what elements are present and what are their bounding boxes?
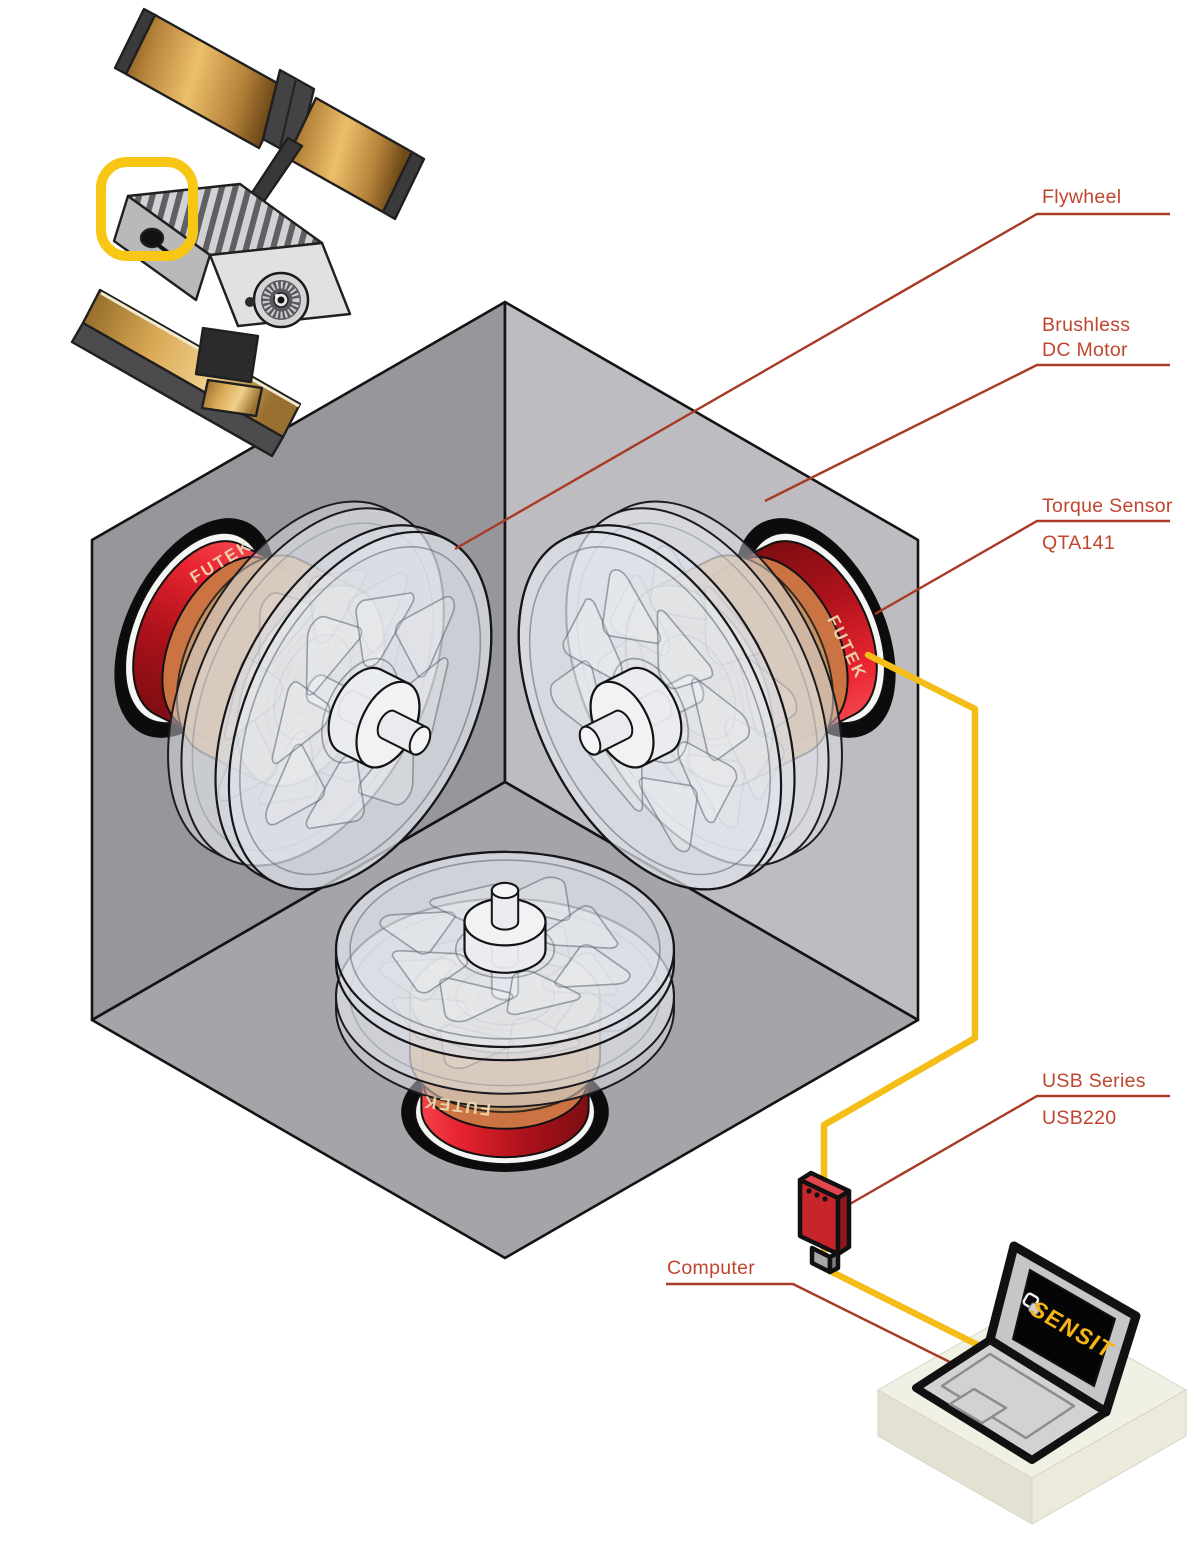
label-torque-sensor: Torque Sensor <box>1042 495 1173 517</box>
label-torque-sensor-model: QTA141 <box>1042 532 1115 554</box>
usb-adapter <box>800 1173 849 1272</box>
usb-connector <box>812 1248 830 1272</box>
callout-line-usb <box>843 1096 1170 1208</box>
label-usb-series: USB Series <box>1042 1070 1146 1092</box>
label-computer: Computer <box>667 1257 755 1279</box>
camera-module <box>196 328 258 382</box>
label-motor-line1: Brushless <box>1042 314 1130 336</box>
callout-line-motor <box>765 365 1170 501</box>
solar-panel-left <box>126 15 288 148</box>
label-motor-line2: DC Motor <box>1042 339 1128 361</box>
label-flywheel: Flywheel <box>1042 186 1121 208</box>
usb-connector-side <box>830 1253 838 1272</box>
label-usb-series-model: USB220 <box>1042 1107 1116 1129</box>
reaction-wheel-test-diagram: FUTEK FUTEK FUTEK <box>0 0 1200 1541</box>
diagram-canvas: FUTEK FUTEK FUTEK <box>0 0 1200 1541</box>
usb-adapter-side <box>838 1191 849 1254</box>
